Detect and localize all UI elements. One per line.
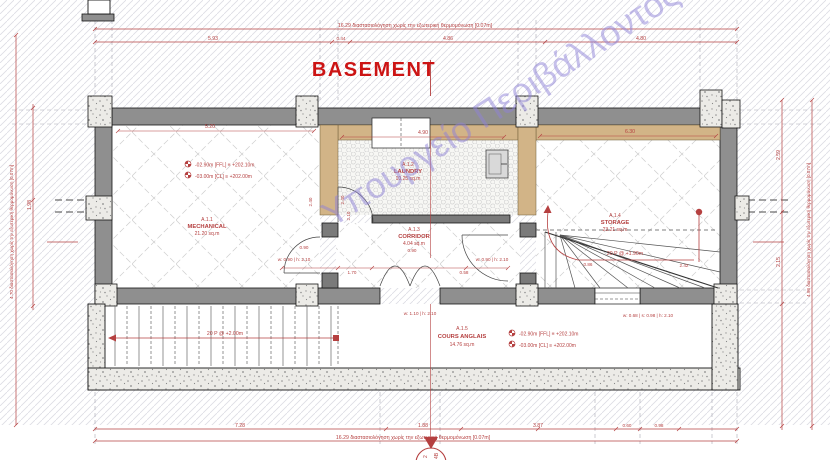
- room-area: 23.21 sq.m: [603, 227, 628, 233]
- dim-right-1: 2.59: [776, 150, 782, 160]
- room-id: A.1.3: [408, 227, 420, 233]
- dim-top-note: 16.29 διαστασιολόγηση χωρίς την εξωτερικ…: [338, 22, 493, 29]
- section-number: 2: [423, 455, 429, 458]
- dim-corridor-2: 0.58: [460, 270, 469, 275]
- level-ffl-mechanical: -02.90m [FFL] ≡ +202.10m: [195, 163, 254, 169]
- room-name: CORRIDOR: [398, 234, 430, 240]
- level-marker-icon: [509, 330, 515, 336]
- upper-stair-stub: [88, 0, 110, 14]
- window-label: w: 0.68 | s: 0.98 | h: 2.10: [623, 313, 674, 318]
- dim-storage-width: 6.30: [625, 129, 635, 135]
- dim-bottom-3: 3.87: [533, 423, 543, 429]
- room-area: 21.20 sq.m: [195, 231, 220, 237]
- dim-stair-2: 2.42: [680, 263, 689, 268]
- dim-bottom-1: 7.28: [235, 423, 245, 429]
- level-marker-icon: [185, 172, 191, 178]
- level-marker-icon: [185, 161, 191, 167]
- dim-top-1: 5.93: [208, 36, 218, 42]
- dim-right-note: 4.98 διαστασιολόγηση χωρίς την εξωτερική…: [805, 163, 812, 297]
- washer-appliance: [486, 150, 508, 178]
- room-id: A.1.1: [201, 217, 213, 223]
- dim-left-1: 1.98: [27, 200, 33, 210]
- room-name: MECHANICAL: [188, 224, 227, 230]
- dim-right-2: 2.15: [776, 257, 782, 267]
- dim-door-mid: 0.90: [408, 248, 417, 253]
- section-sheet: 4B: [434, 452, 440, 459]
- dim-bottom-4: 0.60: [623, 423, 632, 428]
- dim-corridor-1: 1.70: [348, 270, 357, 275]
- dim-door-left: 0.90: [300, 245, 309, 250]
- room-id: A.1.4: [609, 213, 621, 219]
- room-name: COURS ANGLAIS: [438, 334, 487, 340]
- stair-label-lower: 20 P @ +2.00m: [207, 331, 243, 337]
- door-label-double: w: 1.10 | h: 2.10: [404, 311, 437, 316]
- dim-top-3: 4.86: [443, 36, 453, 42]
- room-area: 14.76 sq.m: [450, 342, 475, 348]
- level-cl-cours: -03.00m [CL] ≡ +202.00m: [519, 343, 576, 349]
- stair-label-storage: 20 P @ +1.90m: [607, 251, 643, 257]
- page-title: BASEMENT: [312, 59, 436, 81]
- room-name: STORAGE: [601, 220, 630, 226]
- floor-plan-drawing: BASEMENT 16.29 διαστασιολόγηση χωρίς την…: [0, 0, 830, 460]
- dim-bottom-5: 0.98: [655, 423, 664, 428]
- level-cl-mechanical: -03.00m [CL] ≡ +202.00m: [195, 174, 252, 180]
- dim-mechanical-width: 5.20: [205, 124, 215, 130]
- door-label-right: w: 0.90 | h: 2.10: [476, 257, 509, 262]
- room-id: A.1.5: [456, 326, 468, 332]
- dim-bottom-2: 1.88: [418, 423, 428, 429]
- dim-mech-depth: 2.40: [308, 197, 313, 206]
- dim-top-2: 0.44: [337, 36, 346, 41]
- level-ffl-cours: -02.90m [FFL] ≡ +202.10m: [519, 332, 578, 338]
- dim-left-note: 4.70 διαστασιολόγηση χωρίς την εξωτερική…: [8, 165, 15, 299]
- dim-stair-1: 0.86: [584, 262, 593, 267]
- floor-plan-sheet: BASEMENT 16.29 διαστασιολόγηση χωρίς την…: [0, 0, 830, 460]
- storage-window: [595, 288, 640, 304]
- room-area: 4.04 sq.m: [403, 241, 425, 247]
- level-marker-icon: [509, 341, 515, 347]
- dim-bottom-note: 16.29 διαστασιολόγηση χωρίς την εξωτερικ…: [336, 434, 491, 441]
- mechanical-hatch: [112, 125, 320, 288]
- door-label-left: w: 0.90 | h: 2.10: [278, 257, 311, 262]
